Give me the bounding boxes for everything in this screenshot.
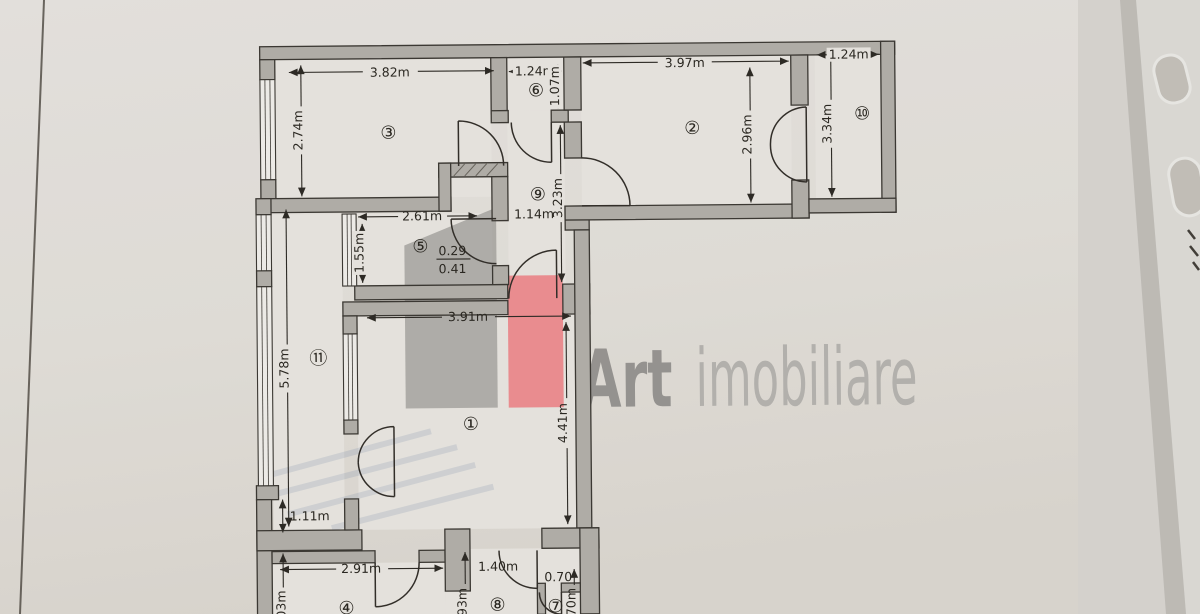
floor-plan-canvas: Art imobiliare (0, 0, 1200, 614)
vignette (0, 0, 1200, 614)
photographed-floor-plan-sheet: Art imobiliare (0, 0, 1200, 614)
